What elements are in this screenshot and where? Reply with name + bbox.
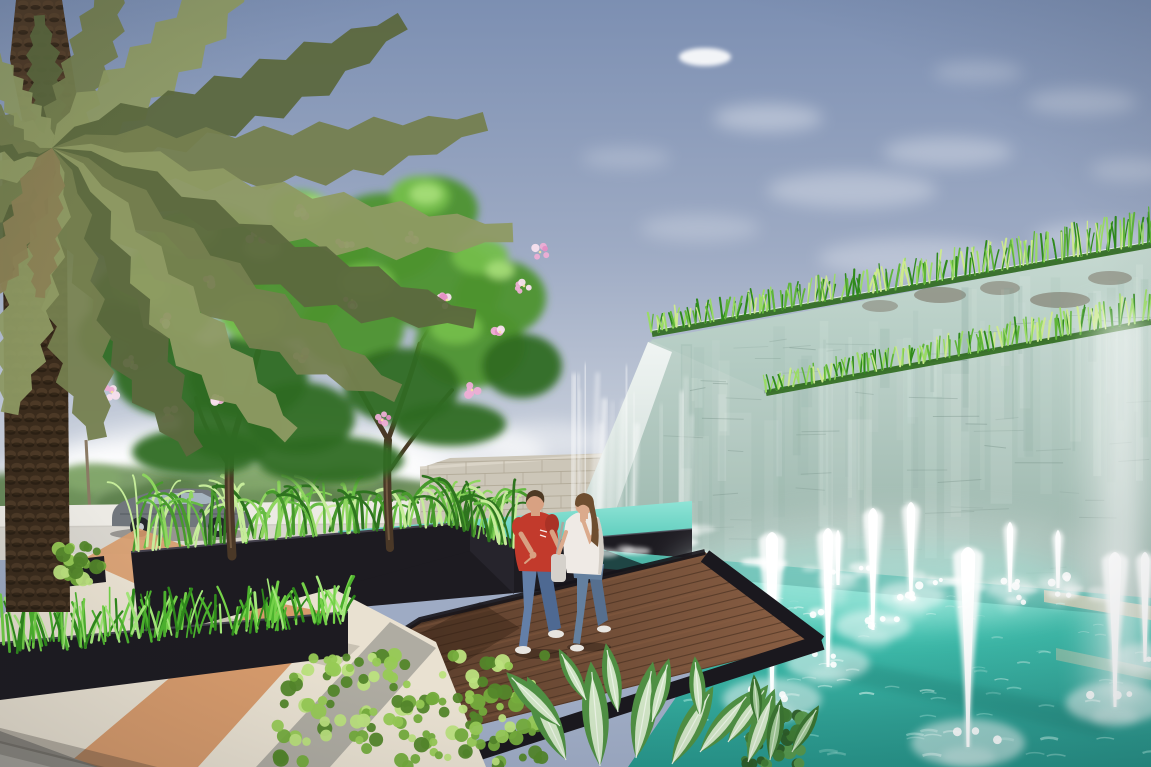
scene-canvas — [0, 0, 1151, 767]
vignette — [0, 0, 1151, 767]
architectural-rendering — [0, 0, 1151, 767]
